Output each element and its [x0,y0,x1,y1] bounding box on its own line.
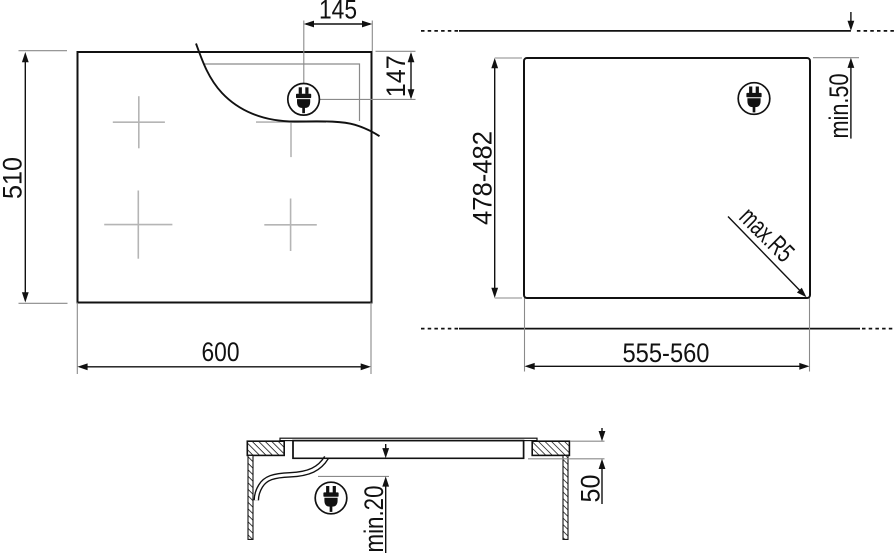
svg-text:478-482: 478-482 [468,131,498,225]
svg-text:145: 145 [319,0,357,25]
svg-text:min.20: min.20 [359,486,389,553]
svg-text:147: 147 [381,55,411,97]
svg-text:510: 510 [0,157,28,199]
svg-text:50: 50 [576,475,606,503]
svg-text:555-560: 555-560 [623,338,710,368]
svg-text:min.50: min.50 [824,74,854,139]
svg-text:600: 600 [202,337,240,367]
